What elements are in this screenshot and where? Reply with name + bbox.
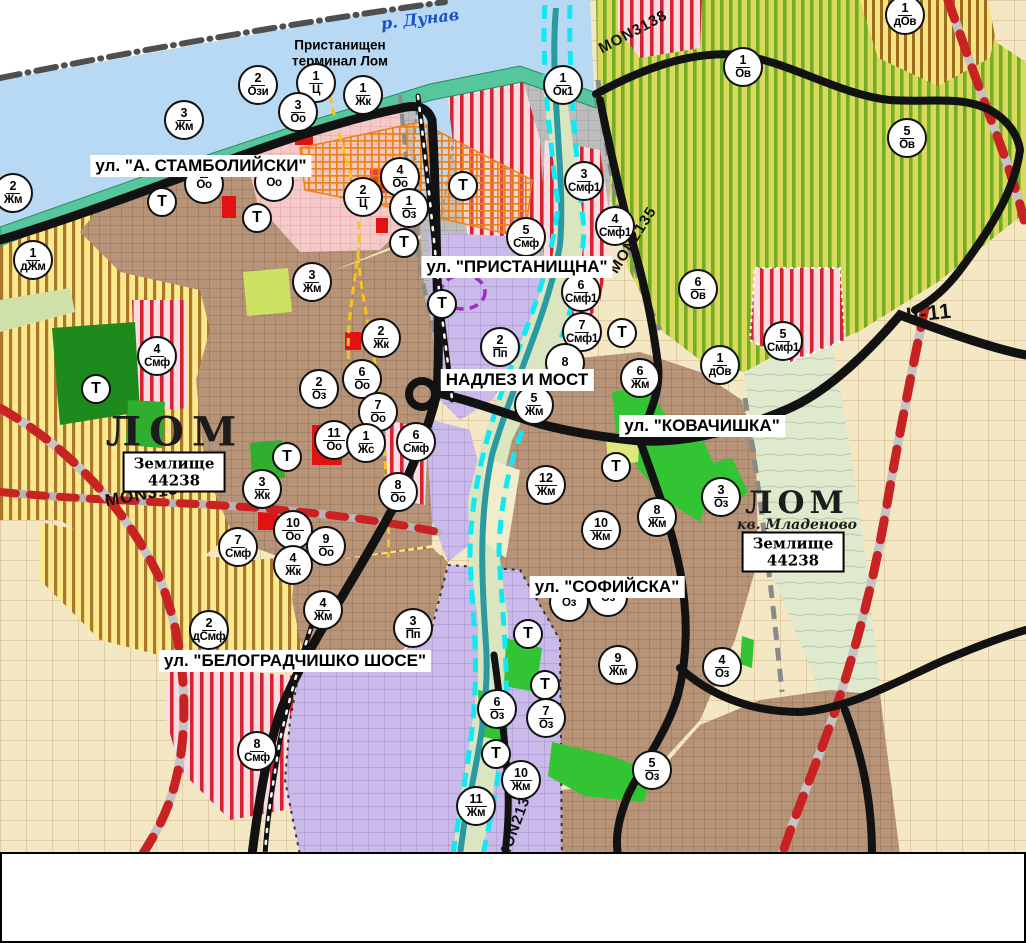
zone-marker-code: Жк <box>285 566 301 579</box>
zone-marker: 8Смф <box>237 731 277 771</box>
zone-marker-code: Жм <box>525 406 543 419</box>
zone-marker-number: 3 <box>291 99 306 113</box>
zone-marker-number: 3 <box>255 476 270 490</box>
zone-marker-code: Жм <box>314 611 332 624</box>
zone-marker-number: 1 <box>359 430 374 444</box>
zone-marker-code: Смф <box>144 357 170 370</box>
zone-marker-code: Смф <box>225 548 251 561</box>
zone-marker-number: 7 <box>371 399 386 413</box>
transport-marker: Т <box>530 670 560 700</box>
zone-marker-code: Жм <box>631 379 649 392</box>
zoning-map-page: { "map": { "river_label": "р. Дунав", "p… <box>0 0 1026 943</box>
zone-marker-code: Оз <box>645 771 659 784</box>
transport-marker: Т <box>272 442 302 472</box>
zone-marker: 7Оз <box>526 698 566 738</box>
zone-marker-code: Смф1 <box>599 227 631 240</box>
land-area-label: Землище <box>753 536 834 553</box>
zone-marker: 12Жм <box>526 465 566 505</box>
zone-marker-code: Оо <box>326 441 341 454</box>
zone-marker: 4Оз <box>702 647 742 687</box>
zone-marker-code: Жк <box>373 339 389 352</box>
zone-marker-code: Смф1 <box>565 293 597 306</box>
zone-marker-number: 1 <box>713 352 728 366</box>
transport-marker: Т <box>81 374 111 404</box>
zone-marker: 1дЖм <box>13 240 53 280</box>
zone-marker-code: Жс <box>358 444 374 457</box>
zone-marker-code: Оо <box>354 380 369 393</box>
land-area-code: 44238 <box>753 552 834 569</box>
transport-marker: Т <box>601 452 631 482</box>
zone-marker: 2дСмф <box>189 610 229 650</box>
zone-marker: 6Смф <box>396 422 436 462</box>
street-label: НАДЛЕЗ И МОСТ <box>441 369 594 391</box>
zone-marker-number: 8 <box>558 356 573 370</box>
zone-marker-number: 6 <box>490 696 505 710</box>
zone-marker-code: дОв <box>894 16 916 29</box>
zone-marker: 2Ц <box>343 177 383 217</box>
zone-marker-code: Жм <box>175 121 193 134</box>
zone-marker: 4Жк <box>273 545 313 585</box>
zone-marker-number: 5 <box>527 392 542 406</box>
zone-marker-number: 2 <box>251 72 266 86</box>
zone-marker-code: Смф1 <box>767 342 799 355</box>
zone-marker-code: Оз <box>539 719 553 732</box>
zone-marker-number: 1 <box>309 70 324 84</box>
zone-marker-code: Жм <box>609 666 627 679</box>
zone-marker: 4Смф1 <box>595 206 635 246</box>
zone-marker-number: 2 <box>312 376 327 390</box>
zone-marker-number: 1 <box>556 72 571 86</box>
transport-marker: Т <box>448 171 478 201</box>
zone-marker: 3Жм <box>164 100 204 140</box>
zone-marker-code: Оо <box>290 113 305 126</box>
zone-marker-number: 10 <box>282 517 304 531</box>
zone-marker: 3Оз <box>701 477 741 517</box>
zone-marker-code: Ц <box>359 198 367 211</box>
zone-marker: 9Жм <box>598 645 638 685</box>
city-name-label: ЛОМ <box>106 409 245 456</box>
zone-marker-number: 1 <box>898 2 913 16</box>
footer-note <box>0 852 1026 943</box>
zone-marker-number: 2 <box>202 617 217 631</box>
street-label: ул. "КОВАЧИШКА" <box>619 415 785 437</box>
zone-marker: 5Ов <box>887 118 927 158</box>
zone-marker-number: 3 <box>577 168 592 182</box>
zone-marker-number: 4 <box>715 654 730 668</box>
zone-marker-code: Оо <box>285 531 300 544</box>
zone-marker-code: Оз <box>402 209 416 222</box>
zone-marker-code: Жм <box>648 518 666 531</box>
land-area-box: Землище44238 <box>123 452 226 493</box>
zone-marker-number: 8 <box>391 479 406 493</box>
zone-marker: 3Жк <box>242 469 282 509</box>
zone-marker-number: 5 <box>776 328 791 342</box>
transport-marker: Т <box>513 619 543 649</box>
zone-marker: 1Жс <box>346 423 386 463</box>
zone-marker-code: Ози <box>248 86 269 99</box>
zone-marker-number: 7 <box>539 705 554 719</box>
zone-marker-code: Жм <box>592 531 610 544</box>
zone-marker-code: Жм <box>4 194 22 207</box>
zone-marker: 2Ози <box>238 65 278 105</box>
zone-marker-number: 1 <box>402 195 417 209</box>
zone-marker: 6Оз <box>477 689 517 729</box>
zone-marker-code: Оз <box>715 668 729 681</box>
zone-marker-number: 11 <box>323 427 344 441</box>
zone-marker-code: Жм <box>303 283 321 296</box>
zone-marker: 10Жм <box>501 760 541 800</box>
zone-marker-number: 5 <box>900 125 915 139</box>
zone-marker-code: Жм <box>537 486 555 499</box>
zone-marker: 6Смф1 <box>561 272 601 312</box>
zone-marker-code: Пп <box>406 629 421 642</box>
zone-marker-number: 10 <box>510 767 532 781</box>
zone-marker-number: 7 <box>231 534 246 548</box>
zone-marker-code: дЖм <box>20 261 45 274</box>
zone-marker-number: 12 <box>535 472 557 486</box>
zone-marker-number: 3 <box>714 484 729 498</box>
zone-marker-number: 5 <box>519 224 534 238</box>
zone-marker: 3Смф1 <box>564 161 604 201</box>
transport-marker: Т <box>147 187 177 217</box>
zone-marker-number: 4 <box>316 597 331 611</box>
zone-marker-code: Пп <box>493 348 508 361</box>
zone-marker: 7Смф <box>218 527 258 567</box>
zone-marker-number: 10 <box>590 517 612 531</box>
zone-marker-code: Ов <box>899 139 914 152</box>
zone-marker: 5Оз <box>632 750 672 790</box>
zone-marker: 6Ов <box>678 269 718 309</box>
zone-marker-code: дСмф <box>193 631 226 644</box>
zone-marker-code: Смф <box>244 752 270 765</box>
zone-marker: 11Жм <box>456 786 496 826</box>
zone-marker-number: 6 <box>355 366 370 380</box>
zoning-map-canvas: р. Дунав Пристанищен терминал Лом ул. "А… <box>0 0 1026 943</box>
zone-marker-code: Оз <box>714 498 728 511</box>
zone-marker-code: Жк <box>254 490 270 503</box>
zone-marker-code: Оо <box>318 547 333 560</box>
zone-marker-code: Смф <box>513 238 539 251</box>
zone-marker-number: 9 <box>319 533 334 547</box>
zone-marker-code: Оо <box>390 493 405 506</box>
zone-marker: 5Смф1 <box>763 321 803 361</box>
street-label: ул. "БЕЛОГРАДЧИШКО ШОСЕ" <box>159 650 431 672</box>
zone-marker-number: 1 <box>736 54 751 68</box>
zone-marker-number: 2 <box>6 180 21 194</box>
transport-marker: Т <box>607 318 637 348</box>
zone-marker: 2Пп <box>480 327 520 367</box>
zone-marker-code: Оо <box>266 176 281 189</box>
zone-marker-code: Ок1 <box>553 86 573 99</box>
zone-marker-number: 8 <box>650 504 665 518</box>
transport-marker: Т <box>389 228 419 258</box>
zone-marker-code: Оо <box>196 178 211 191</box>
zone-marker-number: 5 <box>645 757 660 771</box>
zone-marker-code: Жм <box>512 781 530 794</box>
zone-marker: 1Жк <box>343 75 383 115</box>
zone-marker-code: Жк <box>355 96 371 109</box>
land-area-label: Землище <box>134 456 215 473</box>
zone-marker: 8Оо <box>378 472 418 512</box>
zone-marker: 5Жм <box>514 385 554 425</box>
zone-marker-number: 9 <box>611 652 626 666</box>
zone-marker: 3Жм <box>292 262 332 302</box>
zone-marker-code: Жм <box>467 807 485 820</box>
land-area-box: Землище44238 <box>742 532 845 573</box>
zone-marker: 2Оз <box>299 369 339 409</box>
zone-marker-number: 1 <box>26 247 41 261</box>
road-label: II-11 <box>905 300 953 329</box>
zone-marker-code: Смф <box>403 443 429 456</box>
street-label: ул. "ПРИСТАНИЩНА" <box>421 256 612 278</box>
zone-marker-number: 4 <box>393 164 408 178</box>
zone-marker-number: 3 <box>406 615 421 629</box>
zone-marker-number: 2 <box>493 334 508 348</box>
zone-marker: 1Ов <box>723 47 763 87</box>
zone-marker: 3Оо <box>278 92 318 132</box>
zone-marker: 10Жм <box>581 510 621 550</box>
zone-marker: 8Жм <box>637 497 677 537</box>
zone-marker: 1дОв <box>700 345 740 385</box>
zone-marker-code: Ц <box>312 84 320 97</box>
zone-marker: 5Смф <box>506 217 546 257</box>
zone-marker: 2Жк <box>361 318 401 358</box>
zone-marker-number: 6 <box>633 365 648 379</box>
zone-marker-number: 6 <box>691 276 706 290</box>
zone-marker-code: Оз <box>312 390 326 403</box>
street-label: ул. "А. СТАМБОЛИЙСКИ" <box>90 155 311 177</box>
zone-marker-number: 2 <box>374 325 389 339</box>
zone-marker-number: 1 <box>356 82 371 96</box>
zone-marker-number: 6 <box>409 429 424 443</box>
zone-marker-number: 4 <box>608 213 623 227</box>
transport-marker: Т <box>242 203 272 233</box>
zone-marker: 4Смф <box>137 336 177 376</box>
zone-marker: 1Оз <box>389 188 429 228</box>
zone-marker-code: Оз <box>562 596 576 609</box>
zone-marker: 1Ок1 <box>543 65 583 105</box>
zone-marker: 4Жм <box>303 590 343 630</box>
land-area-code: 44238 <box>134 472 215 489</box>
zone-marker-number: 8 <box>250 738 265 752</box>
zone-marker-number: 3 <box>305 269 320 283</box>
zone-marker: 6Жм <box>620 358 660 398</box>
zone-marker-number: 4 <box>150 343 165 357</box>
zone-marker-code: Ов <box>690 290 705 303</box>
zone-marker-number: 3 <box>177 107 192 121</box>
zone-marker-code: дОв <box>709 366 731 379</box>
zone-marker: 3Пп <box>393 608 433 648</box>
zone-marker-code: Ов <box>735 68 750 81</box>
zone-marker-number: 7 <box>575 319 590 333</box>
city-name-label: ЛОМ <box>745 485 849 521</box>
zone-marker-number: 4 <box>286 552 301 566</box>
zone-marker-number: 6 <box>574 279 589 293</box>
zone-marker-code: Оз <box>490 710 504 723</box>
zone-marker-code: Смф1 <box>568 182 600 195</box>
zone-marker-number: 2 <box>356 184 371 198</box>
transport-marker: Т <box>427 289 457 319</box>
zone-marker-number: 11 <box>465 793 486 807</box>
port-terminal-label: Пристанищен терминал Лом <box>275 37 405 68</box>
street-label: ул. "СОФИЙСКА" <box>530 576 685 598</box>
